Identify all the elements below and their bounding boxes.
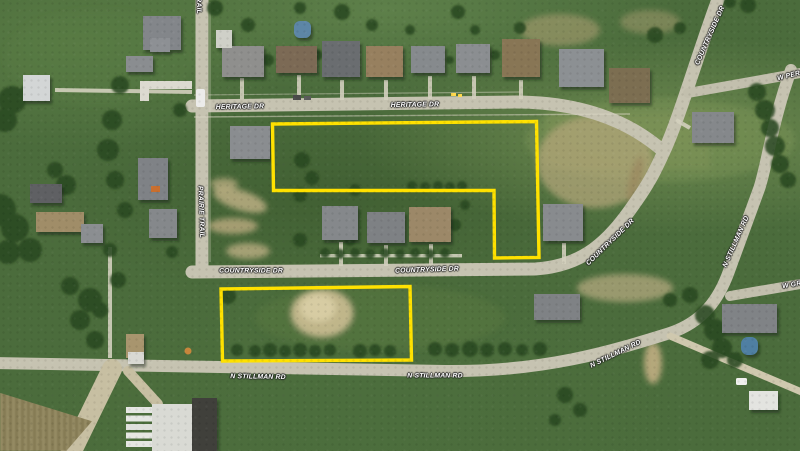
house bbox=[23, 75, 50, 101]
warehouse-damaged-roof bbox=[192, 398, 217, 451]
house bbox=[366, 46, 403, 77]
house bbox=[322, 41, 360, 77]
pool bbox=[294, 21, 311, 38]
pool bbox=[741, 337, 758, 355]
truck bbox=[196, 89, 205, 107]
house bbox=[559, 49, 604, 87]
house bbox=[276, 46, 317, 73]
house bbox=[534, 294, 580, 320]
house bbox=[30, 184, 62, 203]
house bbox=[456, 44, 490, 73]
map-scene bbox=[0, 0, 800, 451]
road-label-prairie-trail-top: PRAIRIE TRAIL bbox=[193, 0, 202, 14]
house bbox=[36, 212, 84, 232]
road-label-heritage-dr-1: HERITAGE DR bbox=[216, 104, 265, 112]
road-label-n-stillman-rd-1: N STILLMAN RD bbox=[230, 374, 286, 382]
road-label-n-stillman-rd-2: N STILLMAN RD bbox=[407, 374, 462, 381]
car bbox=[293, 95, 301, 100]
truck-orange bbox=[151, 186, 160, 192]
house bbox=[543, 204, 583, 241]
house bbox=[222, 46, 264, 77]
van bbox=[736, 378, 747, 385]
satellite-map[interactable]: HERITAGE DR HERITAGE DR COUNTRYSIDE DR W… bbox=[0, 0, 800, 451]
house bbox=[230, 126, 270, 159]
car bbox=[304, 96, 311, 100]
house bbox=[128, 352, 144, 364]
warehouse bbox=[152, 404, 194, 451]
house bbox=[81, 224, 103, 243]
house bbox=[411, 46, 445, 73]
house bbox=[367, 212, 405, 243]
house bbox=[150, 38, 170, 52]
road-label-prairie-trail: PRAIRIE TRAIL bbox=[196, 186, 205, 238]
road-label-heritage-dr-2: HERITAGE DR bbox=[391, 102, 440, 110]
house bbox=[692, 112, 734, 143]
pool-deck bbox=[216, 30, 232, 48]
house bbox=[149, 209, 177, 238]
house bbox=[138, 158, 168, 200]
house bbox=[322, 206, 358, 240]
house bbox=[502, 39, 540, 77]
house bbox=[722, 304, 777, 333]
house bbox=[409, 207, 451, 242]
house bbox=[609, 68, 650, 103]
shed bbox=[749, 391, 778, 410]
drive-industrial-2 bbox=[128, 371, 158, 404]
parcel-north-outline bbox=[273, 122, 540, 259]
house bbox=[126, 56, 153, 72]
road-label-countryside-dr-1: COUNTRYSIDE DR bbox=[219, 269, 283, 276]
